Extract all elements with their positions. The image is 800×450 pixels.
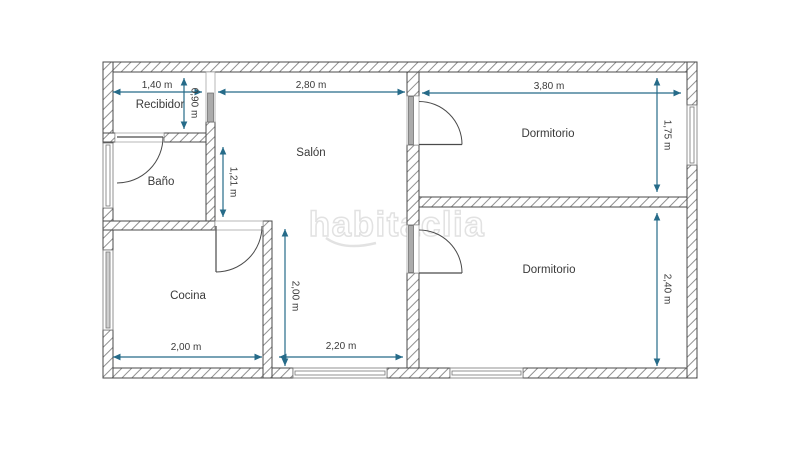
floorplan-image: habitaclia bbox=[0, 0, 800, 450]
window-dormitorio-1 bbox=[687, 105, 697, 165]
dim-salon-upper-depth: 1,21 m bbox=[228, 167, 239, 198]
window-dormitorio-2 bbox=[450, 368, 523, 378]
wall-recibidor-bottom-right bbox=[164, 133, 206, 142]
dim-dormitorio-1-depth: 1,75 m bbox=[662, 120, 673, 151]
dim-cocina-width: 2,00 m bbox=[171, 342, 202, 353]
wall-outer-bottom-mid bbox=[387, 368, 450, 378]
wall-recibidor-bottom-left bbox=[103, 133, 115, 142]
door-dormitorio-1 bbox=[419, 102, 462, 145]
dim-recibidor-width: 1,40 m bbox=[142, 80, 173, 91]
dim-salon-width: 2,80 m bbox=[296, 80, 327, 91]
floorplan-svg: habitaclia bbox=[0, 0, 800, 450]
window-bano bbox=[103, 143, 113, 208]
room-label-bano: Baño bbox=[148, 176, 175, 188]
wall-between-dormitorios bbox=[419, 197, 687, 207]
watermark: habitaclia bbox=[309, 205, 485, 246]
wall-outer-left-1 bbox=[103, 62, 113, 143]
wall-cocina-right bbox=[263, 221, 272, 378]
wall-outer-bottom-right bbox=[523, 368, 697, 378]
room-label-dormitorio-2: Dormitorio bbox=[522, 264, 575, 276]
dim-dormitorio-2-depth: 2,40 m bbox=[662, 274, 673, 305]
room-label-recibidor: Recibidor bbox=[136, 99, 185, 111]
door-cocina bbox=[216, 226, 262, 272]
dim-recibidor-depth: 0,90 m bbox=[189, 88, 200, 119]
watermark-text: habitaclia bbox=[309, 205, 485, 244]
dim-dormitorio-1-width: 3,80 m bbox=[534, 81, 565, 92]
wall-central-3 bbox=[407, 273, 419, 368]
door-slab-dormitorio-2 bbox=[409, 226, 414, 273]
wall-outer-left-3 bbox=[103, 330, 113, 378]
door-slab-recibidor bbox=[208, 93, 214, 122]
wall-central-1 bbox=[407, 72, 419, 96]
wall-outer-top bbox=[103, 62, 697, 72]
room-label-salon: Salón bbox=[296, 147, 325, 159]
room-label-cocina: Cocina bbox=[170, 290, 206, 302]
wall-recibidor-bano-right bbox=[206, 122, 215, 230]
door-arc bbox=[419, 102, 462, 145]
wall-bano-bottom bbox=[103, 221, 215, 230]
wall-central-2 bbox=[407, 145, 419, 225]
opening-cocina bbox=[215, 221, 263, 230]
wall-outer-right-2 bbox=[687, 165, 697, 378]
window-salon bbox=[293, 368, 387, 378]
room-label-dormitorio-1: Dormitorio bbox=[521, 128, 574, 140]
dim-salon-lower-depth: 2,00 m bbox=[290, 281, 301, 312]
door-arc bbox=[216, 226, 262, 272]
window-cocina bbox=[103, 250, 113, 330]
wall-outer-right-1 bbox=[687, 62, 697, 105]
door-slab-dormitorio-1 bbox=[409, 97, 414, 145]
dim-salon-lower-width: 2,20 m bbox=[326, 341, 357, 352]
